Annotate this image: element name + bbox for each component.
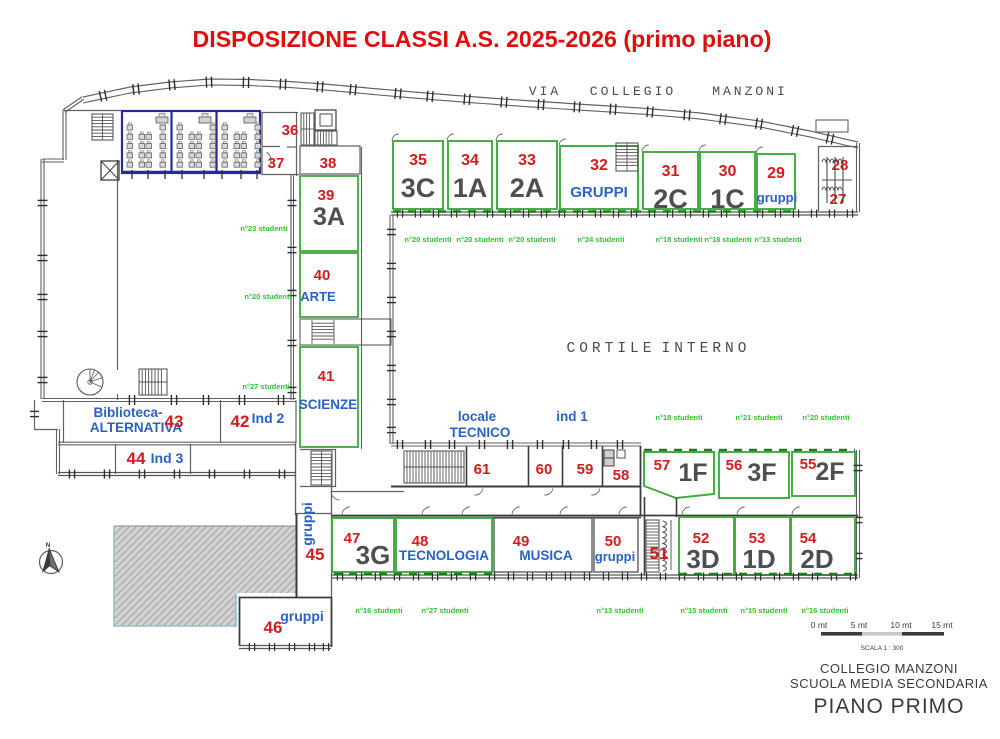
svg-text:ARTE: ARTE: [300, 289, 336, 304]
svg-text:3D: 3D: [686, 544, 719, 574]
svg-text:57: 57: [654, 457, 671, 474]
svg-text:31: 31: [662, 163, 680, 180]
svg-text:n°20 studenti: n°20 studenti: [404, 235, 451, 244]
svg-text:59: 59: [577, 461, 594, 478]
svg-text:n°20 studenti: n°20 studenti: [508, 235, 555, 244]
svg-text:56: 56: [726, 457, 743, 474]
svg-text:50: 50: [605, 533, 622, 550]
svg-text:PIANO PRIMO: PIANO PRIMO: [813, 695, 964, 718]
svg-text:n°16 studenti: n°16 studenti: [355, 606, 402, 615]
svg-text:Ind 2: Ind 2: [252, 410, 285, 426]
svg-text:SCALA 1 : 300: SCALA 1 : 300: [861, 645, 904, 652]
svg-text:ind 1: ind 1: [556, 409, 588, 424]
svg-text:TECNOLOGIA: TECNOLOGIA: [399, 548, 489, 563]
svg-text:n°27 studenti: n°27 studenti: [421, 606, 468, 615]
svg-text:32: 32: [590, 157, 608, 174]
svg-text:55: 55: [800, 456, 817, 473]
svg-text:n°20 studenti: n°20 studenti: [456, 235, 503, 244]
svg-text:GRUPPI: GRUPPI: [570, 184, 628, 201]
svg-text:2F: 2F: [815, 458, 844, 486]
svg-text:33: 33: [518, 152, 536, 169]
svg-text:41: 41: [318, 368, 335, 385]
svg-text:n°18 studenti: n°18 studenti: [655, 235, 702, 244]
svg-text:n°20 studenti: n°20 studenti: [802, 413, 849, 422]
svg-text:n°18 studenti: n°18 studenti: [704, 235, 751, 244]
svg-text:2A: 2A: [510, 173, 545, 203]
svg-text:n°13 studenti: n°13 studenti: [596, 606, 643, 615]
svg-text:3F: 3F: [747, 459, 776, 487]
svg-text:58: 58: [613, 467, 630, 484]
svg-text:gruppi: gruppi: [595, 549, 635, 564]
svg-text:TECNICO: TECNICO: [450, 425, 511, 440]
svg-text:n°21 studenti: n°21 studenti: [735, 413, 782, 422]
svg-text:CORTILE: CORTILE: [567, 341, 656, 357]
svg-text:n°23 studenti: n°23 studenti: [240, 224, 287, 233]
svg-text:gruppi: gruppi: [280, 608, 324, 624]
svg-text:n°15 studenti: n°15 studenti: [740, 606, 787, 615]
svg-text:39: 39: [318, 187, 335, 204]
svg-text:SCIENZE: SCIENZE: [299, 397, 358, 412]
svg-text:n°13 studenti: n°13 studenti: [754, 235, 801, 244]
svg-text:0 mt: 0 mt: [811, 620, 828, 630]
svg-text:44: 44: [127, 449, 146, 468]
svg-text:INTERNO: INTERNO: [662, 341, 751, 357]
svg-text:37: 37: [268, 155, 285, 172]
svg-text:38: 38: [320, 155, 337, 172]
svg-text:3C: 3C: [401, 173, 436, 203]
svg-text:60: 60: [536, 461, 553, 478]
svg-text:1A: 1A: [453, 173, 488, 203]
svg-text:45: 45: [306, 545, 325, 564]
svg-text:42: 42: [231, 412, 250, 431]
svg-text:gruppi: gruppi: [299, 502, 315, 546]
svg-text:gruppi: gruppi: [757, 190, 797, 205]
svg-text:locale: locale: [458, 409, 497, 424]
svg-text:Biblioteca-: Biblioteca-: [93, 405, 162, 420]
svg-text:28: 28: [832, 157, 849, 174]
svg-text:61: 61: [474, 461, 491, 478]
svg-text:27: 27: [830, 191, 847, 208]
svg-text:n°27 studenti: n°27 studenti: [242, 382, 289, 391]
svg-text:35: 35: [409, 152, 427, 169]
svg-text:1D: 1D: [742, 544, 775, 574]
svg-text:30: 30: [719, 163, 737, 180]
svg-text:1F: 1F: [678, 459, 707, 487]
svg-text:DISPOSIZIONE CLASSI A.S. 2025-: DISPOSIZIONE CLASSI A.S. 2025-2026 (prim…: [193, 26, 772, 52]
svg-text:5 mt: 5 mt: [851, 620, 868, 630]
svg-text:MUSICA: MUSICA: [519, 548, 572, 563]
svg-text:n°18 studenti: n°18 studenti: [655, 413, 702, 422]
svg-text:n°15 studenti: n°15 studenti: [680, 606, 727, 615]
svg-text:10 mt: 10 mt: [890, 620, 912, 630]
svg-text:40: 40: [314, 267, 331, 284]
svg-text:34: 34: [461, 152, 479, 169]
svg-text:VIA: VIA: [529, 84, 561, 99]
svg-text:Ind 3: Ind 3: [151, 450, 184, 466]
svg-text:N: N: [46, 542, 51, 549]
svg-text:n°24 studenti: n°24 studenti: [577, 235, 624, 244]
svg-text:29: 29: [767, 165, 785, 182]
svg-text:1C: 1C: [710, 184, 745, 214]
svg-text:36: 36: [282, 122, 299, 139]
svg-text:43: 43: [165, 412, 184, 431]
svg-text:COLLEGIO MANZONI: COLLEGIO MANZONI: [820, 661, 958, 676]
svg-text:3A: 3A: [313, 203, 345, 231]
svg-text:3G: 3G: [356, 540, 391, 570]
svg-text:SCUOLA MEDIA SECONDARIA: SCUOLA MEDIA SECONDARIA: [790, 676, 988, 691]
svg-text:15 mt: 15 mt: [931, 620, 953, 630]
svg-text:MANZONI: MANZONI: [712, 84, 788, 99]
svg-text:51: 51: [650, 544, 669, 563]
svg-text:n°16 studenti: n°16 studenti: [801, 606, 848, 615]
svg-text:n°20 studenti: n°20 studenti: [244, 292, 291, 301]
svg-text:2D: 2D: [800, 544, 833, 574]
svg-text:COLLEGIO: COLLEGIO: [590, 84, 676, 99]
svg-text:2C: 2C: [653, 184, 688, 214]
